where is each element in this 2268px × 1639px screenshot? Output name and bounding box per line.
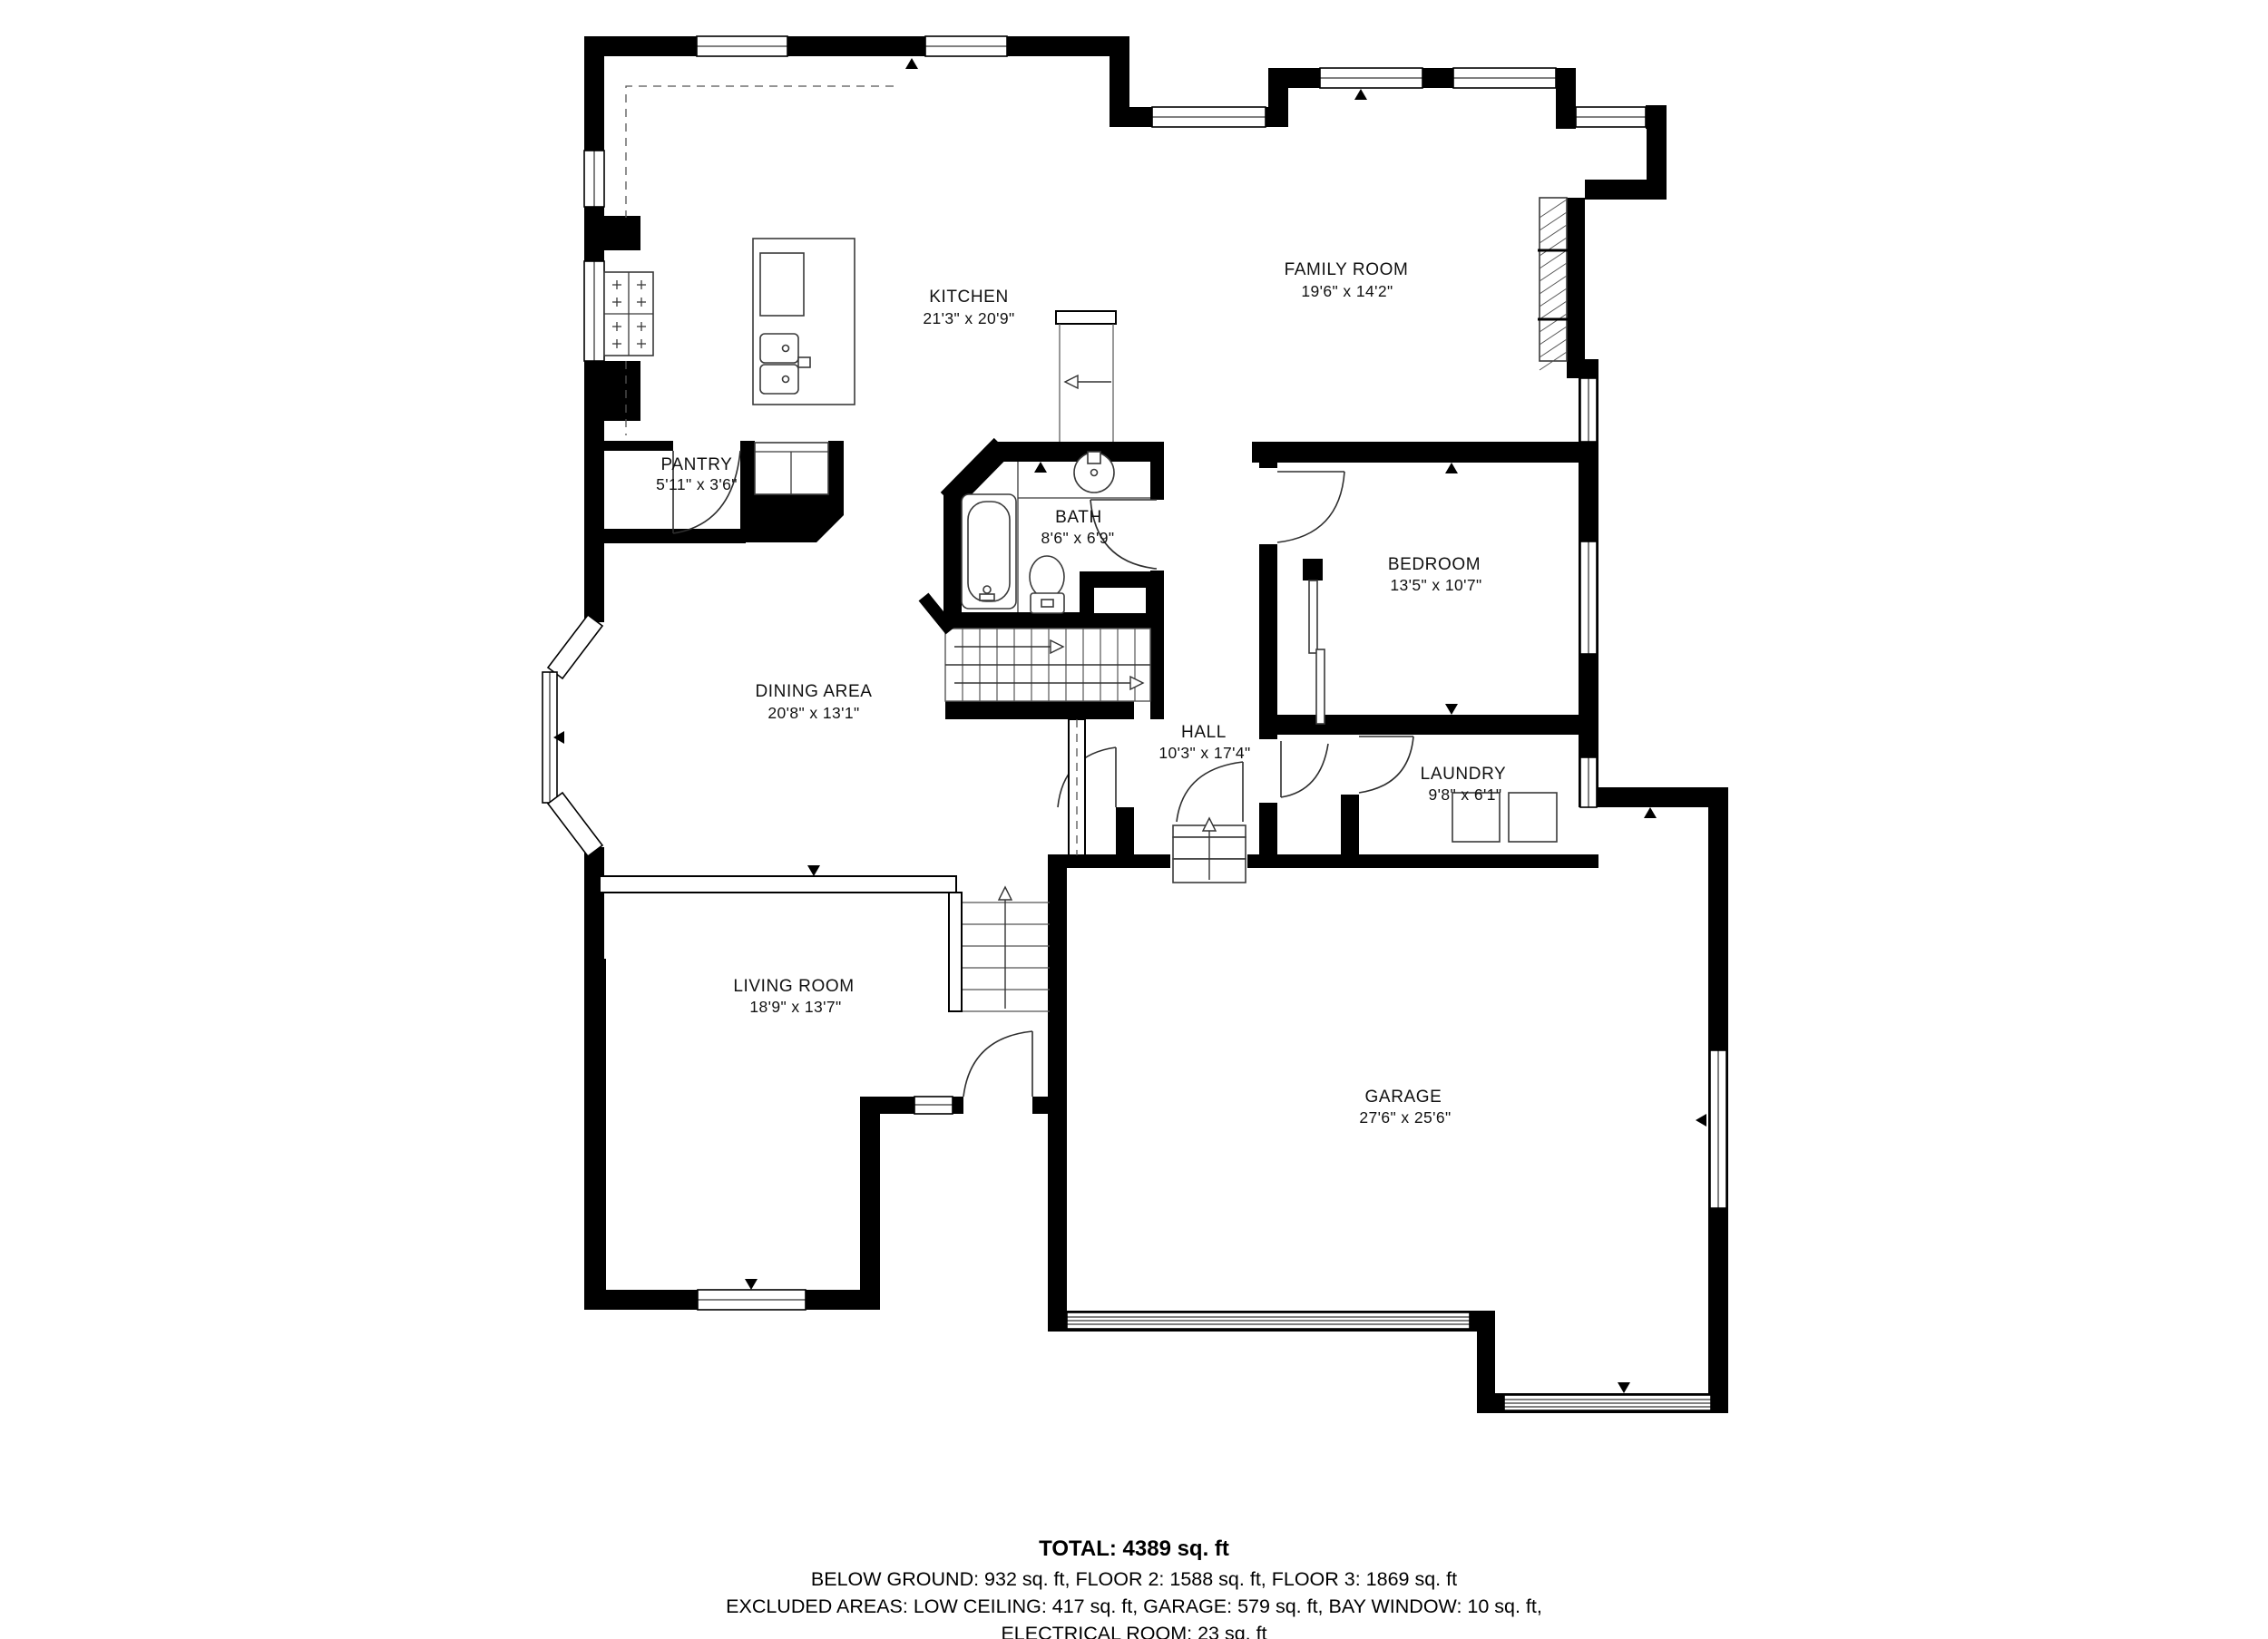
room-dims-family-room: 19'6" x 14'2": [1301, 282, 1393, 300]
door-swing-icon: [1058, 747, 1116, 807]
room-dims-garage: 27'6" x 25'6": [1359, 1108, 1451, 1127]
range-cooktop-icon: [604, 272, 653, 356]
kitchen-island-icon: [753, 239, 855, 405]
summary-excluded: EXCLUDED AREAS: LOW CEILING: 417 sq. ft,…: [0, 1595, 2268, 1618]
window-icon: [1576, 107, 1646, 127]
room-label-pantry: PANTRY: [661, 455, 733, 474]
door-swing-icon: [963, 1031, 1032, 1097]
room-dims-bedroom: 13'5" x 10'7": [1390, 576, 1481, 594]
living-room-steps: [962, 887, 1050, 1011]
door-swing-icon: [1281, 741, 1328, 797]
room-label-bath: BATH: [1055, 508, 1102, 527]
window-icon: [914, 1097, 953, 1114]
sliding-closet-door-icon: [1309, 580, 1325, 724]
toilet-icon: [1030, 556, 1064, 613]
summary-floors: BELOW GROUND: 932 sq. ft, FLOOR 2: 1588 …: [0, 1568, 2268, 1591]
room-label-family-room: FAMILY ROOM: [1285, 260, 1409, 279]
window-icon: [1320, 68, 1422, 88]
window-icon: [1152, 107, 1266, 127]
window-icon: [698, 1290, 806, 1310]
window-icon: [1580, 757, 1597, 807]
room-dims-kitchen: 21'3" x 20'9": [923, 309, 1014, 327]
fireplace-icon: [1538, 198, 1569, 370]
passage-thin-wall: [1069, 719, 1085, 855]
area-summary: TOTAL: 4389 sq. ft BELOW GROUND: 932 sq.…: [0, 1537, 2268, 1639]
door-swing-icon: [1177, 762, 1243, 822]
entry-steps: [1173, 818, 1246, 883]
garage-doors: [1067, 1312, 1711, 1410]
floor-plan-page: KITCHEN 21'3" x 20'9" FAMILY ROOM 19'6" …: [0, 0, 2268, 1639]
room-dims-dining-area: 20'8" x 13'1": [767, 704, 859, 722]
dryer-icon: [1509, 793, 1557, 842]
room-label-hall: HALL: [1181, 723, 1227, 742]
garage-door-icon: [1504, 1395, 1711, 1410]
room-label-living-room: LIVING ROOM: [733, 977, 854, 996]
room-label-garage: GARAGE: [1365, 1088, 1442, 1107]
room-label-laundry: LAUNDRY: [1421, 765, 1507, 784]
summary-total: TOTAL: 4389 sq. ft: [0, 1537, 2268, 1562]
garage-door-icon: [1067, 1312, 1470, 1329]
room-dims-pantry: 5'11" x 3'6": [656, 475, 738, 493]
window-icon: [1453, 68, 1556, 88]
bathtub-icon: [962, 494, 1016, 609]
window-icon: [925, 36, 1007, 56]
door-swing-icon: [1359, 737, 1413, 793]
room-dims-laundry: 9'8" x 6'1": [1429, 785, 1502, 804]
window-icon: [584, 151, 604, 207]
window-icon: [1710, 1050, 1726, 1208]
window-icon: [1580, 378, 1597, 442]
refrigerator-icon: [755, 443, 828, 494]
room-label-bedroom: BEDROOM: [1388, 555, 1481, 574]
room-dims-bath: 8'6" x 6'9": [1041, 529, 1115, 547]
window-icon: [697, 36, 787, 56]
summary-electrical: ELECTRICAL ROOM: 23 sq. ft: [0, 1623, 2268, 1639]
room-dims-hall: 10'3" x 17'4": [1158, 744, 1250, 762]
window-icon: [584, 261, 604, 361]
floor-plan: KITCHEN 21'3" x 20'9" FAMILY ROOM 19'6" …: [0, 0, 2268, 1639]
room-label-dining-area: DINING AREA: [755, 682, 872, 701]
door-swing-icon: [1277, 472, 1344, 542]
stairs: [600, 311, 1246, 1011]
bay-window-icon: [543, 615, 602, 856]
room-dims-living-room: 18'9" x 13'7": [749, 998, 841, 1016]
room-label-kitchen: KITCHEN: [929, 288, 1009, 307]
upper-stair-strip: [1056, 311, 1116, 442]
window-icon: [1580, 541, 1597, 654]
